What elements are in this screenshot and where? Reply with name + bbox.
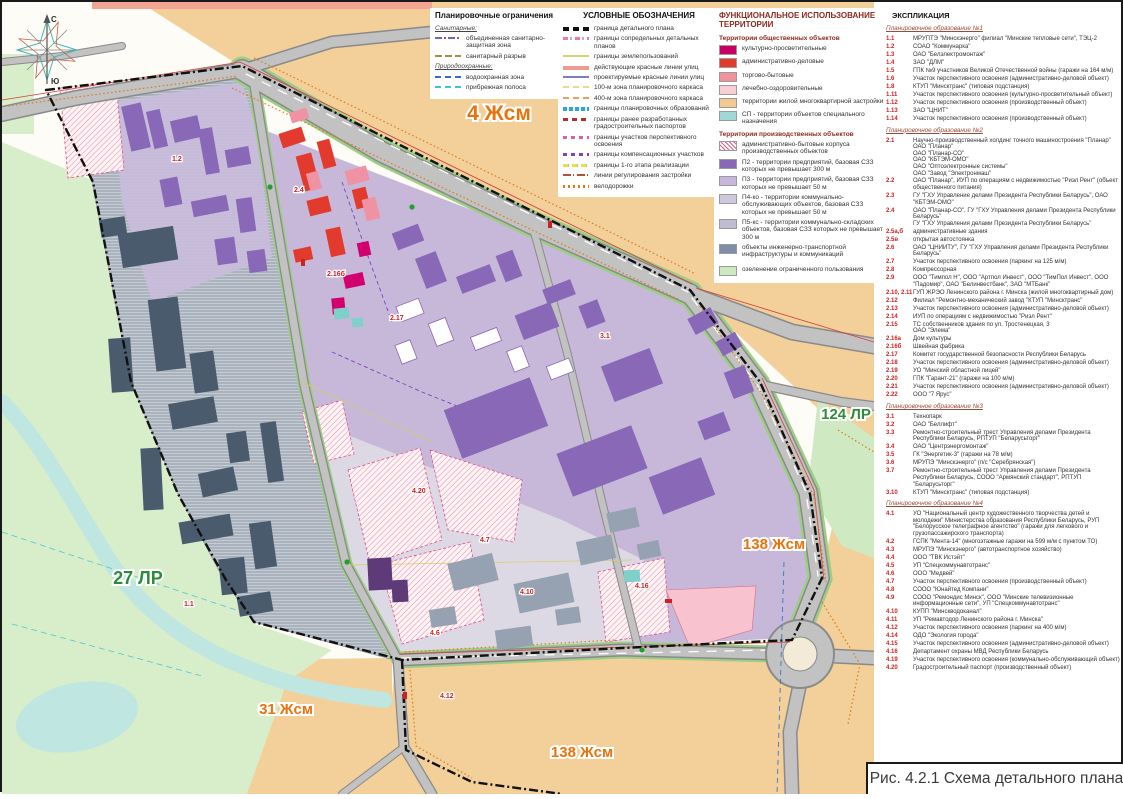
zone-label-4zhsm: 4 Жсм: [467, 102, 531, 125]
explication-item-text: МРУПЭ "Минскэнерго" (п/с "Серебрянская"): [913, 460, 1120, 467]
restrictions-group-nature: Природоохранные:: [435, 63, 563, 70]
explication-item-text: Участок перспективного освоения (админис…: [913, 360, 1120, 367]
explication-item-text: Компрессорная: [913, 267, 1120, 274]
legend-item: 400-м зона планировочного каркаса: [563, 95, 715, 102]
explication-item-number: 2.22: [886, 392, 913, 399]
legend-label: велодорожки: [594, 183, 715, 190]
explication-item-text: УО "Национальный центр художественного т…: [913, 511, 1120, 537]
explication-item: 2.1 Научно-производственный холдинг точн…: [886, 138, 1120, 178]
legend-item: границы 1-го этапа реализации: [563, 162, 715, 169]
explication-item-number: 2.5а,б: [886, 229, 913, 236]
explication-item: 3.5 ГК "Энергетик-3" (гаражи на 78 м/м): [886, 452, 1120, 459]
explication-item-text: Участок перспективного освоения (админис…: [913, 76, 1120, 83]
legend-item: границы землепользований: [563, 53, 715, 60]
explication-item-number: 2.12: [886, 298, 913, 305]
legend-item: культурно-просветительные: [719, 45, 889, 55]
legend-label: проектируемые красные линии улиц: [594, 74, 715, 81]
explication-item-text: ТС собственников здания по ул. Тростенец…: [913, 322, 1120, 335]
explication-item-text: Участок перспективного освоения (произво…: [913, 100, 1120, 107]
explication-item-text: УП "Ремавтодор Ленинского района г. Минс…: [913, 617, 1120, 624]
explication-item-text: Участок перспективного освоения (произво…: [913, 116, 1120, 123]
explication-item-text: Ремонтно-строительный трест Управления д…: [913, 430, 1120, 443]
explication-section-1-heading: Планировочное образование №1: [886, 26, 1120, 33]
legend-line-swatch: [563, 185, 589, 188]
explication-item-number: 2.2: [886, 178, 913, 191]
legend-line-swatch: [563, 118, 589, 121]
explication-section-3-heading: Планировочное образование №3: [886, 404, 1120, 411]
svg-text:4.20: 4.20: [412, 488, 426, 495]
explication-item: 4.12 Участок перспективного освоения (па…: [886, 625, 1120, 632]
legend-line-swatch: [563, 97, 589, 99]
explication-item-text: ГПК "Гарант-21" (гаражи на 100 м/м): [913, 376, 1120, 383]
explication-item: 2.15 ТС собственников здания по ул. Трос…: [886, 322, 1120, 335]
explication-item: 1.1 МРУПТЭ "Минскэнерго" филиал "Минские…: [886, 36, 1120, 43]
explication-section-4-heading: Планировочное образование №4: [886, 501, 1120, 508]
legend-label: торгово-бытовые: [742, 72, 889, 79]
explication-item-text: административные здания: [913, 229, 1120, 236]
svg-text:1.1: 1.1: [184, 601, 194, 608]
svg-text:4.16: 4.16: [635, 583, 649, 590]
explication-panel: ЭКСПЛИКАЦИЯ Планировочное образование №1…: [886, 10, 1120, 673]
compass-south-label: Ю: [51, 77, 59, 86]
legend-label: СП - территории объектов специального на…: [742, 111, 889, 126]
compass-north-label: С: [51, 15, 57, 24]
restrictions-title: Планировочные ограничения: [435, 12, 563, 21]
legend-line-swatch: [563, 174, 589, 176]
legend-label: культурно-просветительные: [742, 45, 889, 52]
explication-item-number: 2.3: [886, 193, 913, 206]
legend-item: проектируемые красные линии улиц: [563, 74, 715, 81]
explication-item: 1.4 ЗАО "ДЛМ": [886, 60, 1120, 67]
legend-line-swatch: [563, 76, 589, 78]
explication-item-number: 3.6: [886, 460, 913, 467]
zone-color-chip: [719, 244, 737, 254]
explication-item-text: ООО "Тимпол Н", ООО "Артпол Инвест", ООО…: [913, 275, 1120, 288]
legend-label: границы сопредельных детальных планов: [594, 35, 715, 50]
legend-label: границы планировочных образований: [594, 105, 715, 112]
explication-item: 1.2 СОАО "Коммунарка": [886, 44, 1120, 51]
explication-item-text: ОАО "Центрэнергомонтаж": [913, 444, 1120, 451]
explication-item: 4.16 Департамент охраны МВД Республики Б…: [886, 649, 1120, 656]
explication-item-text: Участок перспективного освоения (культур…: [913, 92, 1120, 99]
legend-label: 100-м зона планировочного каркаса: [594, 84, 715, 91]
explication-item: 2.12 Филиал "Ремонтно-механический завод…: [886, 298, 1120, 305]
explication-item-number: 2.4: [886, 208, 913, 228]
explication-item-number: 2.15: [886, 322, 913, 335]
functional-public-list: культурно-просветительные административн…: [719, 45, 889, 125]
legend-label: озеленение ограниченного пользования: [742, 266, 889, 273]
svg-text:4.7: 4.7: [480, 537, 490, 544]
svg-text:2.4: 2.4: [294, 187, 304, 194]
explication-item: 2.6 ОАО "ЦНИИТУ", ГУ "ГХУ Управления дел…: [886, 245, 1120, 258]
legend-line-swatch: [563, 86, 589, 88]
explication-item-number: 4.15: [886, 641, 913, 648]
legend-line-swatch: [563, 136, 589, 139]
explication-item-text: Участок перспективного освоения (коммуна…: [913, 657, 1120, 664]
explication-item-text: ЗАО "ЦНИТ": [913, 108, 1120, 115]
legend-item: П5-кс - территории коммунально-складских…: [719, 219, 889, 241]
explication-item-number: 4.8: [886, 587, 913, 594]
explication-item-number: 4.11: [886, 617, 913, 624]
explication-item-number: 2.8: [886, 267, 913, 274]
explication-item-text: СОАО "Коммунарка": [913, 44, 1120, 51]
legend-item: СП - территории объектов специального на…: [719, 111, 889, 126]
explication-item: 3.6 МРУПЭ "Минскэнерго" (п/с "Серебрянск…: [886, 460, 1120, 467]
zone-color-chip: [719, 141, 737, 151]
explication-item-text: Участок перспективного освоения (админис…: [913, 641, 1120, 648]
legend-line-swatch: [435, 55, 461, 57]
legend-label: границы ранее разработанных градостроите…: [594, 116, 715, 131]
explication-item-number: 4.2: [886, 539, 913, 546]
legend-line-swatch: [563, 107, 589, 111]
legend-label: территории жилой многоквартирной застрой…: [742, 98, 889, 105]
legend-item: 100-м зона планировочного каркаса: [563, 84, 715, 91]
explication-item: 2.13 Участок перспективного освоения (ад…: [886, 306, 1120, 313]
explication-item-number: 4.19: [886, 657, 913, 664]
explication-item: 2.22 ООО "7 Ярус": [886, 392, 1120, 399]
legend-item: торгово-бытовые: [719, 72, 889, 82]
explication-item-number: 1.14: [886, 116, 913, 123]
zone-color-chip: [719, 219, 737, 229]
functional-industrial-list: административно-бытовые корпуса производ…: [719, 141, 889, 259]
explication-item-number: 4.14: [886, 633, 913, 640]
explication-item: 4.6 ООО "Медвей": [886, 571, 1120, 578]
explication-item-text: СООО "Ремондис Минск", ООО "Минские теле…: [913, 595, 1120, 608]
explication-section-2-heading: Планировочное образование №2: [886, 128, 1120, 135]
symbols-list: граница детального плана границы сопреде…: [563, 25, 715, 190]
explication-item-text: ГПК №9 участников Великой Отечественной …: [913, 68, 1120, 75]
legend-label: П3 - территории предприятий, базовая СЗЗ…: [742, 176, 889, 191]
legend-label: административно-деловые: [742, 58, 889, 65]
explication-item-number: 2.9: [886, 275, 913, 288]
explication-item: 1.6 Участок перспективного освоения (адм…: [886, 76, 1120, 83]
explication-item: 1.8 КТУП "Минсктранс" (типовая подстанци…: [886, 84, 1120, 91]
explication-title: ЭКСПЛИКАЦИЯ: [892, 12, 1120, 20]
explication-item-text: Департамент охраны МВД Республики Белару…: [913, 649, 1120, 656]
explication-item: 3.10 КТУП "Минсктранс" (типовая подстанц…: [886, 490, 1120, 497]
explication-item-text: открытая автостоянка: [913, 237, 1120, 244]
explication-item-number: 4.9: [886, 595, 913, 608]
explication-item: 1.12 Участок перспективного освоения (пр…: [886, 100, 1120, 107]
explication-item-text: ГУП ЖРЭО Ленинского района г. Минска (жи…: [913, 290, 1120, 297]
explication-item-number: 3.5: [886, 452, 913, 459]
legend-line-swatch: [563, 27, 589, 31]
svg-text:1.2: 1.2: [172, 156, 182, 163]
explication-item: 4.19 Участок перспективного освоения (ко…: [886, 657, 1120, 664]
zone-color-chip: [719, 98, 737, 108]
legend-item: границы участков перспективного освоения: [563, 134, 715, 149]
explication-item: 4.5 УП "Спецкоммунавтотранс": [886, 563, 1120, 570]
explication-item-number: 3.2: [886, 422, 913, 429]
legend-item: водоохранная зона: [435, 74, 563, 81]
explication-item: 2.5а,б административные здания: [886, 229, 1120, 236]
explication-item-number: 4.6: [886, 571, 913, 578]
legend-label: водоохранная зона: [466, 74, 563, 81]
legend-label: П4-ко - территории коммунально-обслужива…: [742, 194, 889, 216]
explication-item-number: 2.17: [886, 352, 913, 359]
explication-item-text: ОДО "Экология города": [913, 633, 1120, 640]
explication-item-number: 1.13: [886, 108, 913, 115]
restrictions-sanitary-list: объединенная санитарно-защитная зона сан…: [435, 35, 563, 60]
legend-item: административно-бытовые корпуса производ…: [719, 141, 889, 156]
legend-label: объекты инженерно-транспортной инфрастру…: [742, 244, 889, 259]
explication-item: 3.1 Технопарк: [886, 414, 1120, 421]
plan-sheet: { "title_block": {"caption": "Рис. 4.2.1…: [0, 0, 1123, 792]
explication-item: 1.11 Участок перспективного освоения (ку…: [886, 92, 1120, 99]
legend-label: 400-м зона планировочного каркаса: [594, 95, 715, 102]
explication-section-4-list: 4.1 УО "Национальный центр художественно…: [886, 511, 1120, 672]
legend-panel-symbols: УСЛОВНЫЕ ОБОЗНАЧЕНИЯ граница детального …: [558, 8, 720, 197]
explication-item: 2.9 ООО "Тимпол Н", ООО "Артпол Инвест",…: [886, 275, 1120, 288]
explication-item-text: ЗАО "ДЛМ": [913, 60, 1120, 67]
restrictions-group-sanitary: Санитарные:: [435, 25, 563, 32]
explication-item: 4.8 СООО "Юнайтед Компани": [886, 587, 1120, 594]
explication-item-text: Градостроительный паспорт (производствен…: [913, 665, 1120, 672]
explication-item-number: 2.14: [886, 314, 913, 321]
explication-item-text: ОАО "ЦНИИТУ", ГУ "ГХУ Управления делами …: [913, 245, 1120, 258]
explication-item-number: 4.1: [886, 511, 913, 537]
explication-item: 2.4 ОАО "Планар-СО", ГУ "ГХУ Управления …: [886, 208, 1120, 228]
explication-item: 2.17 Комитет государственной безопасност…: [886, 352, 1120, 359]
legend-line-swatch: [435, 86, 461, 88]
legend-label: санитарный разрыв: [466, 53, 563, 60]
explication-item: 3.2 ОАО "Беллифт": [886, 422, 1120, 429]
zone-color-chip: [719, 45, 737, 55]
zone-label-138zhsm-bottom: 138 Жсм: [551, 744, 613, 761]
legend-label: лечебно-оздоровительные: [742, 85, 889, 92]
explication-item-number: 1.1: [886, 36, 913, 43]
explication-item-text: ГК "Энергетик-3" (гаражи на 78 м/м): [913, 452, 1120, 459]
explication-item-number: 3.7: [886, 468, 913, 488]
explication-item-text: СООО "Юнайтед Компани": [913, 587, 1120, 594]
legend-label: административно-бытовые корпуса производ…: [742, 141, 889, 156]
explication-item-text: ИУП по операциям с недвижимостью "Риэл Р…: [913, 314, 1120, 321]
legend-label: границы компенсационных участков: [594, 151, 715, 158]
explication-item-text: Участок перспективного освоения (паркинг…: [913, 259, 1120, 266]
explication-item: 2.10, 2.11 ГУП ЖРЭО Ленинского района г.…: [886, 290, 1120, 297]
explication-item-number: 2.6: [886, 245, 913, 258]
legend-line-swatch: [563, 37, 589, 40]
explication-item-text: Технопарк: [913, 414, 1120, 421]
explication-item-number: 2.7: [886, 259, 913, 266]
explication-item: 3.3 Ремонтно-строительный трест Управлен…: [886, 430, 1120, 443]
explication-item: 2.3 ГУ "ГХУ Управление делами Президента…: [886, 193, 1120, 206]
explication-item-text: ООО "Медвей": [913, 571, 1120, 578]
explication-item-number: 1.6: [886, 76, 913, 83]
legend-item: П3 - территории предприятий, базовая СЗЗ…: [719, 176, 889, 191]
explication-item: 4.3 МРУПЭ "Минскэнерго" (автотранспортно…: [886, 547, 1120, 554]
explication-item-number: 2.10, 2.11: [886, 290, 913, 297]
explication-item-number: 4.10: [886, 609, 913, 616]
symbols-title: УСЛОВНЫЕ ОБОЗНАЧЕНИЯ: [563, 12, 715, 21]
zone-color-chip: [719, 85, 737, 95]
explication-item-text: Участок перспективного освоения (админис…: [913, 306, 1120, 313]
explication-item: 2.19 УО "Минский областной лицей": [886, 368, 1120, 375]
explication-item-text: ГУ "ГХУ Управление делами Президента Рес…: [913, 193, 1120, 206]
explication-item-text: Швейная фабрика: [913, 344, 1120, 351]
explication-item: 3.4 ОАО "Центрэнергомонтаж": [886, 444, 1120, 451]
legend-label: границы участков перспективного освоения: [594, 134, 715, 149]
explication-item-number: 1.12: [886, 100, 913, 107]
zone-label-27lr: 27 ЛР: [113, 568, 163, 588]
legend-label: границы землепользований: [594, 53, 715, 60]
explication-item: 2.14 ИУП по операциям с недвижимостью "Р…: [886, 314, 1120, 321]
legend-label: линии регулирования застройки: [594, 172, 715, 179]
legend-label: прибрежная полоса: [466, 84, 563, 91]
functional-section-public: Территории общественных объектов: [719, 35, 889, 42]
zone-color-chip: [719, 194, 737, 204]
legend-panel-restrictions: Планировочные ограничения Санитарные: об…: [430, 8, 568, 99]
explication-item-text: МРУПТЭ "Минскэнерго" филиал "Минские теп…: [913, 36, 1120, 43]
explication-item-number: 2.18: [886, 360, 913, 367]
explication-item-text: УП "Спецкоммунавтотранс": [913, 563, 1120, 570]
explication-item-number: 1.11: [886, 92, 913, 99]
explication-item-text: Участок перспективного освоения (админис…: [913, 384, 1120, 391]
explication-item-text: КТУП "Минсктранс" (типовая подстанция): [913, 84, 1120, 91]
explication-item-number: 1.8: [886, 84, 913, 91]
explication-item: 4.14 ОДО "Экология города": [886, 633, 1120, 640]
figure-caption-block: Рис. 4.2.1 Схема детального плана: [866, 762, 1123, 794]
explication-item: 2.20 ГПК "Гарант-21" (гаражи на 100 м/м): [886, 376, 1120, 383]
explication-item-number: 1.4: [886, 60, 913, 67]
explication-item: 4.10 КУПП "Минскводоканал": [886, 609, 1120, 616]
legend-label: П2 - территории предприятий, базовая СЗЗ…: [742, 159, 889, 174]
legend-item: велодорожки: [563, 183, 715, 190]
explication-item-text: КУПП "Минскводоканал": [913, 609, 1120, 616]
svg-text:3.1: 3.1: [600, 333, 610, 340]
legend-label: действующие красные линии улиц: [594, 64, 715, 71]
explication-item: 2.8 Компрессорная: [886, 267, 1120, 274]
explication-item: 4.20 Градостроительный паспорт (производ…: [886, 665, 1120, 672]
explication-item-text: Участок перспективного освоения (произво…: [913, 579, 1120, 586]
explication-item-number: 2.20: [886, 376, 913, 383]
explication-item-number: 3.10: [886, 490, 913, 497]
explication-item: 2.18 Участок перспективного освоения (ад…: [886, 360, 1120, 367]
explication-item: 1.14 Участок перспективного освоения (пр…: [886, 116, 1120, 123]
legend-item: линии регулирования застройки: [563, 172, 715, 179]
explication-item-number: 1.3: [886, 52, 913, 59]
explication-item-number: 4.3: [886, 547, 913, 554]
functional-section-industrial: Территории производственных объектов: [719, 131, 889, 138]
red-line-band: [92, 2, 432, 9]
legend-item: границы сопредельных детальных планов: [563, 35, 715, 50]
legend-item: объединенная санитарно-защитная зона: [435, 35, 563, 50]
explication-item: 4.11 УП "Ремавтодор Ленинского района г.…: [886, 617, 1120, 624]
legend-item: административно-деловые: [719, 58, 889, 68]
explication-item-number: 2.5в: [886, 237, 913, 244]
legend-label: объединенная санитарно-защитная зона: [466, 35, 563, 50]
explication-item-text: Комитет государственной безопасности Рес…: [913, 352, 1120, 359]
zone-color-chip: [719, 266, 737, 276]
explication-item: 1.3 ОАО "Белэлектромонтаж": [886, 52, 1120, 59]
legend-item: территории жилой многоквартирной застрой…: [719, 98, 889, 108]
svg-text:4.6: 4.6: [430, 630, 440, 637]
svg-text:4.12: 4.12: [440, 693, 454, 700]
explication-item: 4.4 ООО "ТВК Истэйт": [886, 555, 1120, 562]
legend-item: санитарный разрыв: [435, 53, 563, 60]
legend-line-swatch: [563, 55, 589, 57]
explication-section-1-list: 1.1 МРУПТЭ "Минскэнерго" филиал "Минские…: [886, 36, 1120, 122]
legend-item-greenery: озеленение ограниченного пользования: [719, 266, 889, 276]
legend-label: П5-кс - территории коммунально-складских…: [742, 219, 889, 241]
explication-item-number: 2.21: [886, 384, 913, 391]
zone-label-138zhsm-right: 138 Жсм: [743, 536, 805, 553]
explication-item: 2.16а Дом культуры: [886, 336, 1120, 343]
explication-item-number: 2.16а: [886, 336, 913, 343]
explication-item-number: 4.20: [886, 665, 913, 672]
roundabout: [766, 620, 834, 688]
zone-color-chip: [719, 176, 737, 186]
explication-item-text: Дом культуры: [913, 336, 1120, 343]
explication-item-text: Филиал "Ремонтно-механический завод "КТУ…: [913, 298, 1120, 305]
explication-item-number: 4.4: [886, 555, 913, 562]
explication-item-number: 2.19: [886, 368, 913, 375]
explication-item-text: ОАО "Планар", ИУП по операциям с недвижи…: [913, 178, 1120, 191]
zone-label-31zhsm: 31 Жсм: [259, 701, 313, 718]
explication-item-text: ОАО "Белэлектромонтаж": [913, 52, 1120, 59]
legend-item: лечебно-оздоровительные: [719, 85, 889, 95]
explication-item: 4.9 СООО "Ремондис Минск", ООО "Минские …: [886, 595, 1120, 608]
zone-color-chip: [719, 159, 737, 169]
functional-title: ФУНКЦИОНАЛЬНОЕ ИСПОЛЬЗОВАНИЕ ТЕРРИТОРИИ: [719, 12, 889, 30]
explication-item-text: ОАО "Беллифт": [913, 422, 1120, 429]
legend-line-swatch: [563, 164, 589, 167]
legend-item: прибрежная полоса: [435, 84, 563, 91]
zone-color-chip: [719, 111, 737, 121]
restrictions-nature-list: водоохранная зона прибрежная полоса: [435, 74, 563, 92]
explication-section-3-list: 3.1 Технопарк 3.2 ОАО "Беллифт" 3.3 Ремо…: [886, 414, 1120, 496]
explication-item: 3.7 Ремонтно-строительный трест Управлен…: [886, 468, 1120, 488]
explication-item: 2.7 Участок перспективного освоения (пар…: [886, 259, 1120, 266]
explication-item: 2.16б Швейная фабрика: [886, 344, 1120, 351]
legend-line-swatch: [435, 76, 461, 78]
explication-item: 2.2 ОАО "Планар", ИУП по операциям с нед…: [886, 178, 1120, 191]
explication-item: 4.2 ГСПК "Мента-14" (многоэтажные гаражи…: [886, 539, 1120, 546]
legend-line-swatch: [563, 153, 589, 156]
zone-color-chip: [719, 58, 737, 68]
explication-item-text: ООО "ТВК Истэйт": [913, 555, 1120, 562]
explication-item-number: 4.12: [886, 625, 913, 632]
legend-item: П4-ко - территории коммунально-обслужива…: [719, 194, 889, 216]
legend-label: граница детального плана: [594, 25, 715, 32]
explication-item: 4.7 Участок перспективного освоения (про…: [886, 579, 1120, 586]
explication-item: 4.1 УО "Национальный центр художественно…: [886, 511, 1120, 537]
explication-item: 4.15 Участок перспективного освоения (ад…: [886, 641, 1120, 648]
legend-line-swatch: [563, 66, 589, 70]
explication-item-number: 2.16б: [886, 344, 913, 351]
explication-item-number: 4.7: [886, 579, 913, 586]
explication-item-text: КТУП "Минсктранс" (типовая подстанция): [913, 490, 1120, 497]
figure-caption: Рис. 4.2.1 Схема детального плана: [870, 770, 1123, 788]
explication-item-text: Участок перспективного освоения (паркинг…: [913, 625, 1120, 632]
zone-label-124lr: 124 ЛР: [821, 406, 871, 423]
explication-item-number: 3.3: [886, 430, 913, 443]
svg-text:2.17: 2.17: [390, 315, 404, 322]
explication-item-number: 1.5: [886, 68, 913, 75]
explication-item-text: ООО "7 Ярус": [913, 392, 1120, 399]
legend-panel-functional: ФУНКЦИОНАЛЬНОЕ ИСПОЛЬЗОВАНИЕ ТЕРРИТОРИИ …: [714, 8, 894, 283]
explication-item: 2.21 Участок перспективного освоения (ад…: [886, 384, 1120, 391]
legend-item: границы ранее разработанных градостроите…: [563, 116, 715, 131]
explication-item-number: 2.1: [886, 138, 913, 178]
zone-color-chip: [719, 72, 737, 82]
explication-item-number: 3.1: [886, 414, 913, 421]
explication-item-text: Ремонтно-строительный трест Управления д…: [913, 468, 1120, 488]
svg-text:2.16б: 2.16б: [327, 270, 346, 278]
explication-item-number: 1.2: [886, 44, 913, 51]
legend-item: П2 - территории предприятий, базовая СЗЗ…: [719, 159, 889, 174]
legend-item: границы компенсационных участков: [563, 151, 715, 158]
